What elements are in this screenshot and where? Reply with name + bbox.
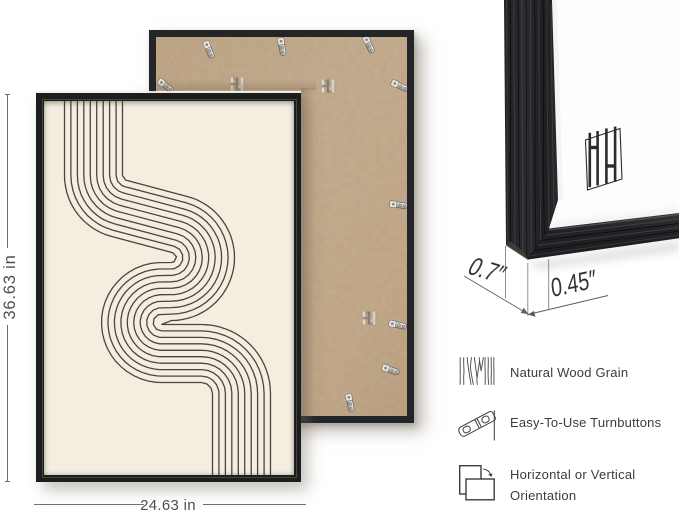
svg-text:0.7″: 0.7″ [463,252,511,288]
svg-text:0.45″: 0.45″ [550,264,598,303]
